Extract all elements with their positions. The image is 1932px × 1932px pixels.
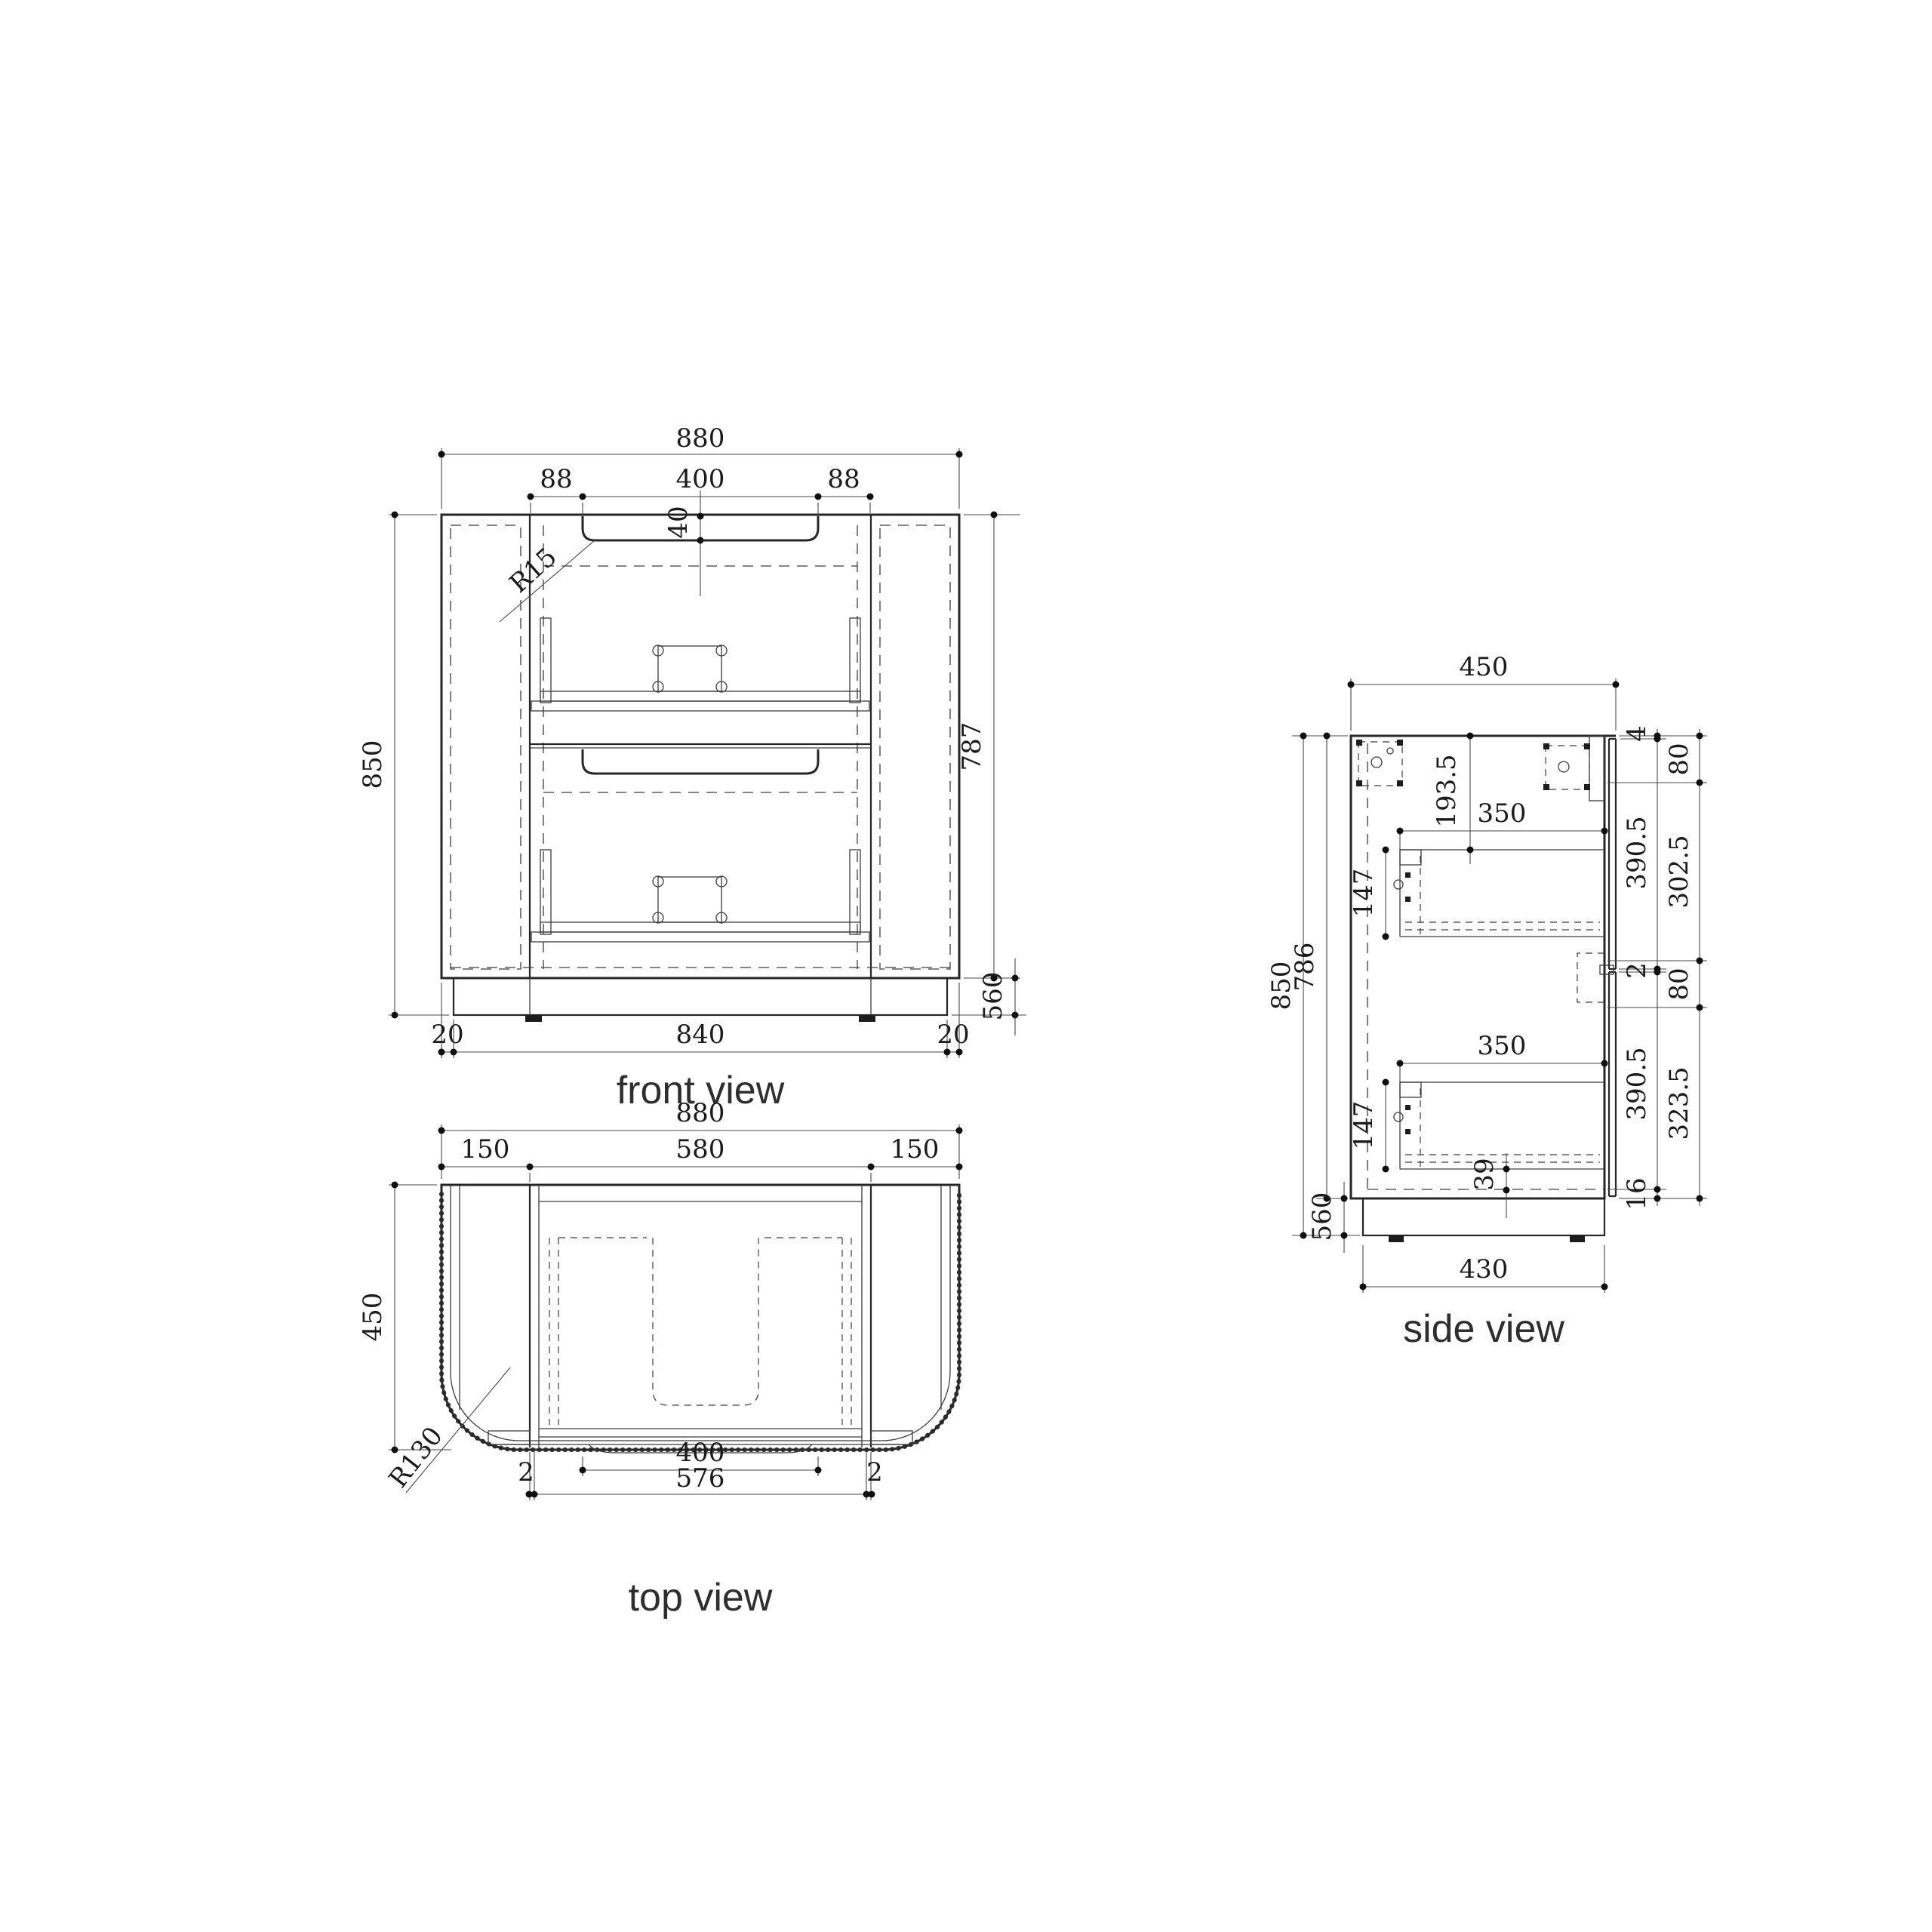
foot-right [859, 1015, 875, 1022]
dim-front-overall-height: 850 [358, 740, 388, 789]
dim-side-bottom-panel: 16 [1622, 1177, 1652, 1210]
screw-icon [1558, 761, 1569, 772]
screw-icon [1387, 748, 1393, 754]
side-top-right-bracket [1543, 736, 1604, 801]
drawer-box-outline [1400, 850, 1604, 937]
dim-front-handle-offset-left: 88 [540, 464, 572, 494]
side-mid-connector-dashed [1577, 953, 1604, 1002]
dim-side-drawer-height-upper: 147 [1349, 869, 1379, 918]
side-lower-drawer-box [1394, 1082, 1604, 1169]
dim-side-top-gap: 4 [1622, 725, 1652, 742]
screw-icon [1405, 872, 1411, 878]
side-drawer-front-upper [1609, 739, 1616, 969]
dim-side-overall-depth: 450 [1460, 652, 1509, 682]
top-view: 880 150 580 150 450 R130 400 2 576 2 top… [358, 1098, 959, 1620]
drawer-rail-lower [531, 701, 869, 711]
extension-lines [389, 515, 449, 1015]
dim-top-gap-left: 2 [518, 1457, 534, 1487]
side-upper-drawer-box [1394, 850, 1604, 937]
dim-front-plinth-inset-left: 20 [431, 1020, 463, 1050]
dim-side-runner-zone-lower: 323.5 [1664, 1066, 1694, 1140]
side-view-title: side view [1403, 1307, 1564, 1351]
side-drawer-front-lower [1609, 972, 1616, 1196]
top-sink-dashed [549, 1238, 851, 1425]
screw-icon [1405, 1129, 1411, 1134]
cabinet-orthographic-drawing: 880 88 400 88 40 R15 850 787 560 20 [0, 0, 1932, 1932]
dim-top-drawer-front-width: 576 [676, 1463, 725, 1494]
drawer-back-notch [1400, 850, 1421, 865]
sink-basin-dashed [653, 1238, 758, 1405]
dim-front-plinth-height: 560 [978, 972, 1008, 1021]
screw-icon [1543, 743, 1549, 749]
dim-top-side-panel-left: 150 [461, 1134, 510, 1164]
dim-side-drawer-front-lower: 390.5 [1622, 1047, 1652, 1120]
top-inner-edge [451, 1185, 950, 1441]
dim-side-drawer-depth-lower: 350 [1478, 1031, 1527, 1061]
drawer-rail [540, 691, 860, 701]
top-body-outline [441, 1185, 959, 1450]
top-view-title: top view [629, 1576, 773, 1620]
screw-icon [1397, 740, 1403, 746]
dim-front-plinth-inset-right: 20 [937, 1020, 969, 1050]
screw-icon [1584, 743, 1590, 749]
drawer-rail-lower [531, 932, 869, 942]
top-front-block-right [871, 1431, 912, 1444]
front-upper-drawer-internals [531, 618, 869, 711]
drawer-side-panel [540, 850, 551, 934]
screw-icon [1543, 784, 1549, 790]
side-plinth [1363, 1198, 1604, 1235]
screw-icon [1356, 740, 1362, 746]
dim-top-gap-right: 2 [866, 1457, 883, 1487]
dim-top-inner-width: 580 [676, 1134, 725, 1164]
top-front-block-left [488, 1431, 530, 1444]
dim-top-side-panel-right: 150 [891, 1134, 940, 1164]
foot-front [1570, 1235, 1585, 1242]
front-lower-drawer-internals [531, 850, 869, 942]
screw-icon [1405, 897, 1411, 902]
dim-front-handle-depth: 40 [663, 506, 694, 538]
extension-lines [530, 1173, 871, 1182]
side-top-left-bracket [1356, 740, 1403, 786]
technical-drawing-page: 880 88 400 88 40 R15 850 787 560 20 [0, 0, 1932, 1932]
front-view: 880 88 400 88 40 R15 850 787 560 20 [358, 423, 1026, 1112]
drawer-side-panel [850, 618, 860, 703]
dim-side-drawer-top-offset: 193.5 [1432, 754, 1462, 827]
front-handle-trough-lower [583, 749, 818, 774]
runner-mount [1589, 736, 1604, 801]
drawer-slide-bracket [658, 877, 721, 922]
screw-icon [1394, 880, 1403, 889]
dim-side-drawer-front-upper: 390.5 [1622, 816, 1652, 889]
dim-side-bottom-clearance: 39 [1469, 1158, 1500, 1190]
top-edge-bead-texture [441, 1194, 959, 1450]
dim-side-drawer-height-lower: 147 [1349, 1101, 1379, 1150]
dim-front-handle-width: 400 [676, 464, 725, 494]
dim-front-handle-radius: R15 [504, 542, 563, 599]
screw-icon [1371, 757, 1382, 768]
dim-side-plinth-height: 560 [1307, 1192, 1337, 1241]
dim-side-plinth-depth: 430 [1460, 1254, 1509, 1284]
front-plinth [454, 978, 947, 1015]
dim-front-handle-offset-right: 88 [827, 464, 860, 494]
dim-side-runner-zone-upper: 302.5 [1664, 835, 1694, 908]
drawer-back-notch [1400, 1082, 1421, 1097]
side-view: 450 193.5 350 147 350 147 39 4 390.5 2 3 [1266, 652, 1707, 1351]
extension-lines [1351, 678, 1616, 731]
foot-back [1389, 1235, 1404, 1242]
dim-side-front-gap: 2 [1622, 962, 1652, 979]
screw-icon [1394, 1112, 1403, 1121]
screw-icon [1356, 780, 1362, 786]
dim-side-bracket-zone-mid: 80 [1664, 968, 1694, 1000]
dim-top-overall-depth: 450 [358, 1293, 388, 1342]
drawer-side-panel [850, 850, 860, 934]
dim-top-overall-width: 880 [676, 1098, 725, 1128]
dim-front-overall-width: 880 [676, 423, 725, 454]
screw-icon [1584, 784, 1590, 790]
drawer-slide-bracket [658, 646, 721, 691]
drawer-rail [540, 922, 860, 932]
dim-side-drawer-depth-upper: 350 [1478, 798, 1527, 829]
drawer-side-panel [540, 618, 551, 703]
screw-icon [1397, 780, 1403, 786]
screw-icon [1405, 1105, 1411, 1110]
drawer-box-outline [1400, 1082, 1604, 1169]
front-left-door-dashed [451, 525, 521, 969]
dim-side-body-height: 786 [1290, 943, 1320, 992]
front-right-door-dashed [880, 525, 950, 969]
bracket-dashed-outline [1546, 746, 1589, 789]
dim-front-plinth-width: 840 [676, 1020, 725, 1050]
dim-side-bracket-zone-top: 80 [1664, 743, 1694, 775]
foot-left [525, 1015, 542, 1022]
dim-top-corner-radius: R130 [383, 1421, 449, 1494]
bracket-dashed-outline [1358, 742, 1402, 786]
dim-front-body-height: 787 [957, 722, 987, 771]
